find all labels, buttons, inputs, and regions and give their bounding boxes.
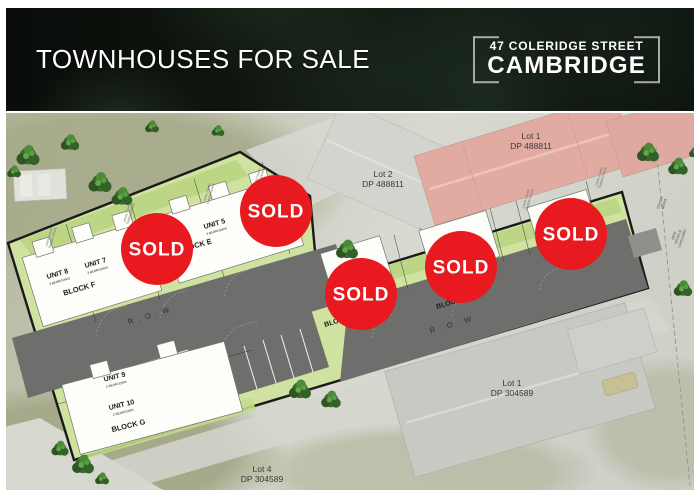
sold-badge-2: SOLD (240, 175, 312, 247)
sold-badge-label: SOLD (129, 240, 186, 261)
sold-badge-label: SOLD (248, 202, 305, 223)
poster-title: TOWNHOUSES FOR SALE (36, 44, 370, 75)
address-block: 47 COLERIDGE STREET CAMBRIDGE (473, 36, 660, 84)
sold-badge-5: SOLD (535, 198, 607, 270)
sold-badge-label: SOLD (543, 225, 600, 246)
townhouse-sale-poster: Lot 1DP 488811Lot 2DP 488811Lot 1DP 3045… (0, 0, 700, 500)
sold-badge-1: SOLD (121, 213, 193, 285)
address-city: CAMBRIDGE (487, 53, 646, 79)
sold-badge-3: SOLD (325, 258, 397, 330)
sold-badge-label: SOLD (433, 258, 490, 279)
neighbor-house-west (13, 169, 66, 202)
sold-badge-4: SOLD (425, 231, 497, 303)
header-banner: TOWNHOUSES FOR SALE 47 COLERIDGE STREET … (6, 8, 694, 111)
bracket-right-icon (634, 36, 660, 84)
sold-badge-label: SOLD (333, 285, 390, 306)
